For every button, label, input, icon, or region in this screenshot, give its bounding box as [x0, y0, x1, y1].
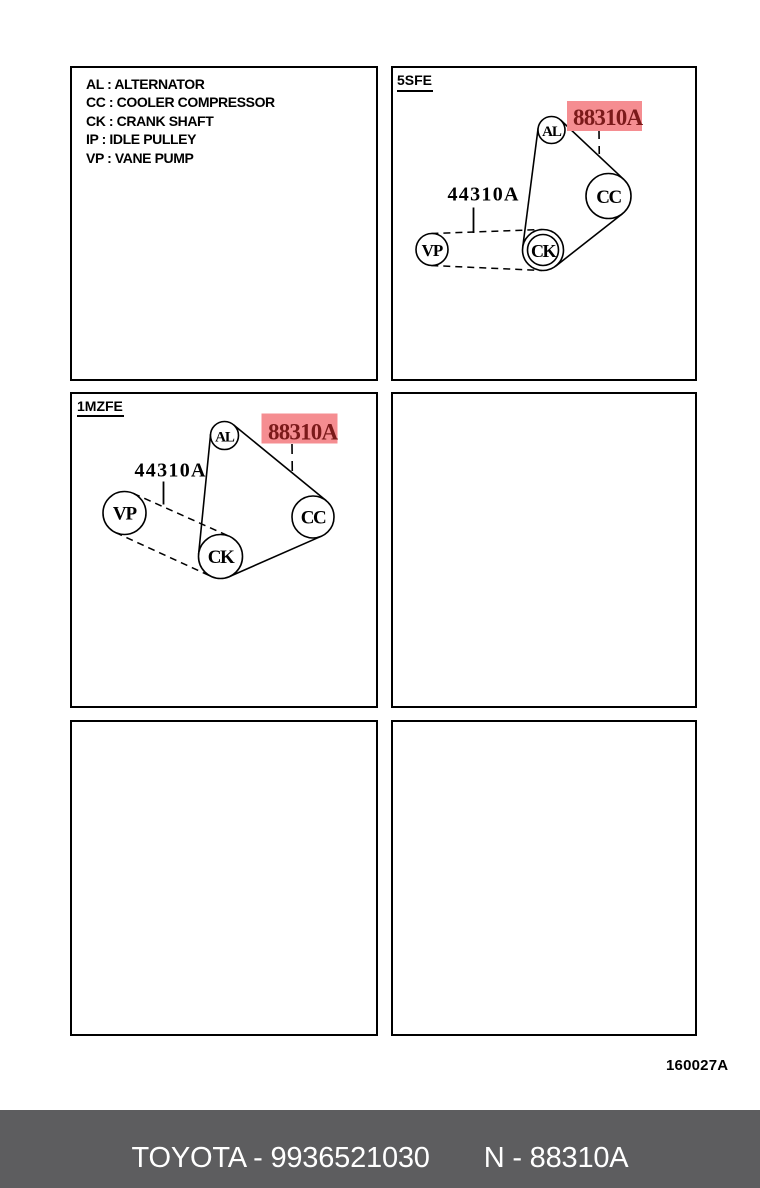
svg-text:CC: CC — [596, 187, 621, 208]
svg-text:VP: VP — [113, 504, 138, 525]
svg-text:AL: AL — [542, 124, 562, 140]
svg-text:88310A: 88310A — [268, 420, 339, 445]
svg-text:44310A: 44310A — [135, 460, 207, 482]
svg-text:VP: VP — [422, 241, 443, 260]
svg-text:CK: CK — [531, 241, 556, 261]
svg-text:44310A: 44310A — [448, 184, 520, 206]
svg-text:CC: CC — [301, 508, 326, 529]
svg-text:AL: AL — [215, 430, 235, 446]
svg-text:CK: CK — [208, 547, 235, 568]
svg-text:88310A: 88310A — [573, 105, 644, 130]
